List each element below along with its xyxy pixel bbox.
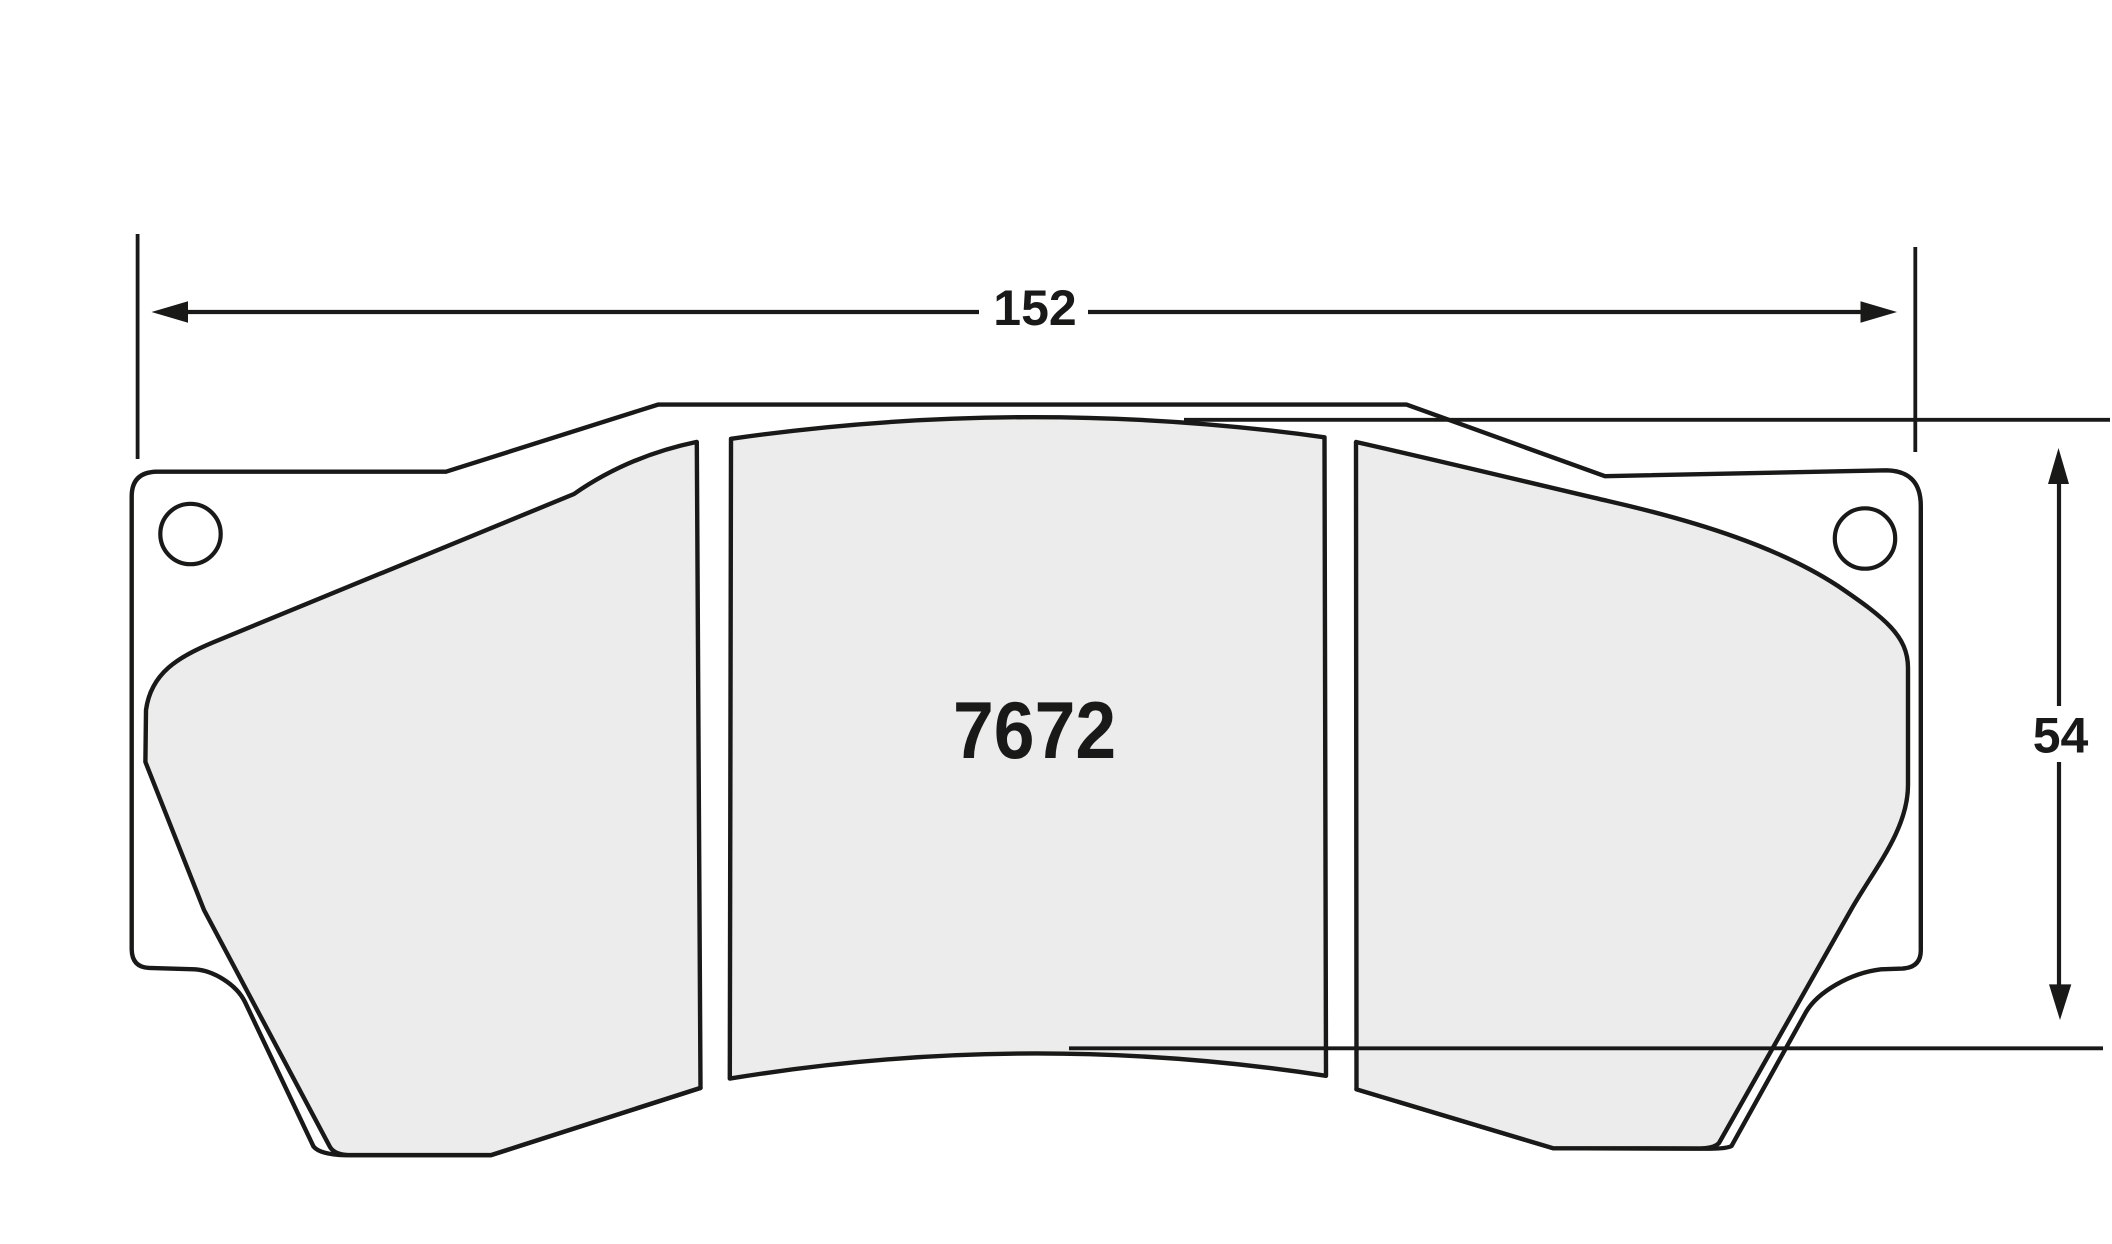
svg-text:7672: 7672: [953, 686, 1116, 776]
svg-text:152: 152: [993, 280, 1076, 336]
svg-text:54: 54: [2033, 708, 2089, 764]
